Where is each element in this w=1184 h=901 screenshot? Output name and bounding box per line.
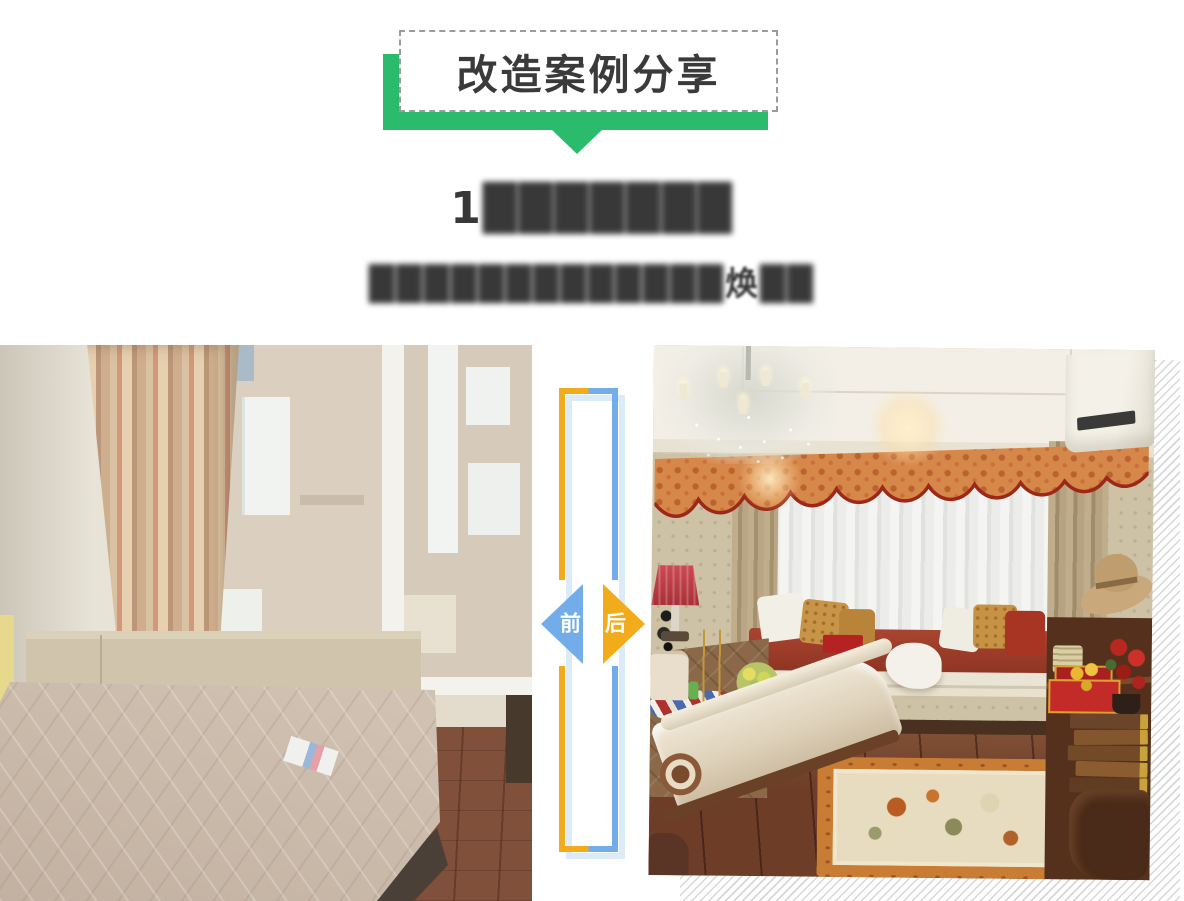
bench-foot [648,833,688,875]
divider-bar-right [612,666,618,852]
downlight-glow [868,387,949,468]
chandelier-candle [679,383,687,399]
lamp-shade [651,565,699,606]
book [1068,745,1148,761]
dresser-leg [1068,789,1149,880]
ac-vent [1077,410,1136,430]
red-flowers [1100,630,1152,701]
building-window [466,367,510,425]
sun-hat [1079,543,1154,618]
handbag [650,650,689,700]
book [1070,713,1148,729]
divider-bar-top [559,388,618,394]
chandelier-candle [762,370,770,386]
banner-title-box: 改造案例分享 [399,30,778,112]
book [1074,730,1148,746]
case-title: 1███████ [0,183,1184,234]
after-badge: 后 [603,584,645,664]
pillow-red [1005,611,1045,655]
before-after-divider: 前 后 [559,388,618,852]
building-ledge [300,495,364,505]
before-label: 前 [560,614,581,635]
case-subtitle-redacted-left: █████████████ [369,264,725,303]
chandelier-stem [746,346,751,380]
before-badge: 前 [541,584,583,664]
after-photo [648,345,1155,880]
lamp-base [661,631,689,641]
area-rug [816,757,1069,880]
chandelier-candle [801,383,809,399]
gold-stand [700,630,725,702]
vase [1112,694,1140,714]
bench-scroll-arm [659,753,701,795]
building-window [468,463,520,535]
case-subtitle-char: 焕 [725,264,760,303]
case-title-redacted: ███████ [483,183,734,234]
green-candle [688,681,698,699]
page-title: 改造案例分享 [457,41,721,101]
divider-bar-left [559,388,565,580]
lamp-stem [671,605,679,633]
divider-bar-right [612,388,618,580]
table-lamp [651,565,702,646]
rug-center [833,769,1054,867]
divider-bar-left [559,666,565,852]
air-conditioner [1065,348,1155,453]
case-title-prefix: 1 [450,183,483,234]
before-photo [0,345,532,901]
after-label: 后 [605,614,626,635]
divider-bar-bottom [559,846,618,852]
case-subtitle-redacted-right: ██ [760,264,815,303]
banner-ribbon-notch [551,129,603,154]
page: 改造案例分享 1███████ █████████████焕██ [0,0,1184,901]
chandelier-crystals [747,416,750,419]
building-window [242,397,290,515]
radiator [506,695,532,783]
book [1075,761,1147,778]
chandelier-candle [739,398,747,414]
chandelier [661,345,837,465]
chandelier-candle [720,372,728,388]
building-window [428,345,458,553]
case-subtitle: █████████████焕██ [0,257,1184,305]
